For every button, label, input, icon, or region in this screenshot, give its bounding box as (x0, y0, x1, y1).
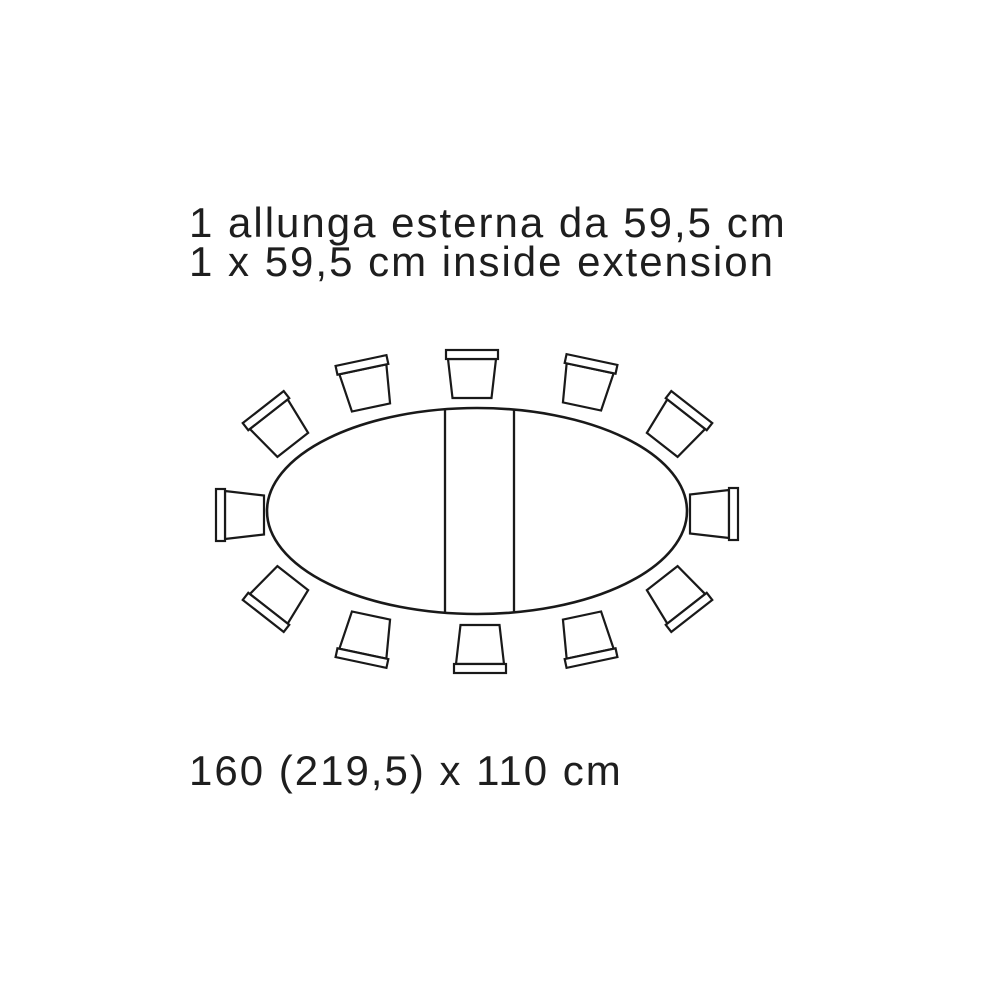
chair-backrest (446, 350, 498, 359)
chair-backrest (729, 488, 738, 540)
chair (243, 562, 314, 632)
chair (642, 391, 713, 461)
chair (446, 350, 498, 398)
chair (690, 488, 738, 540)
chair-seat (643, 399, 705, 459)
chair (243, 391, 314, 461)
chair (216, 489, 264, 541)
chair-seat (643, 563, 705, 623)
chair-seat (456, 625, 504, 664)
chair (336, 610, 397, 668)
chair-seat (250, 399, 312, 459)
chair (336, 355, 397, 413)
table-plan-svg (0, 0, 1000, 1000)
chair-backrest (454, 664, 506, 673)
chair (454, 625, 506, 673)
chair (557, 354, 618, 412)
table-top (267, 408, 687, 614)
chair (557, 610, 618, 668)
chair-seat (690, 490, 729, 538)
chair (642, 562, 713, 632)
chair-seat (448, 359, 496, 398)
product-spec-sheet: 1 allunga esterna da 59,5 cm 1 x 59,5 cm… (0, 0, 1000, 1000)
dimensions-label: 160 (219,5) x 110 cm (189, 751, 623, 791)
chair-backrest (216, 489, 225, 541)
chair-seat (225, 491, 264, 539)
chair-seat (250, 563, 312, 623)
